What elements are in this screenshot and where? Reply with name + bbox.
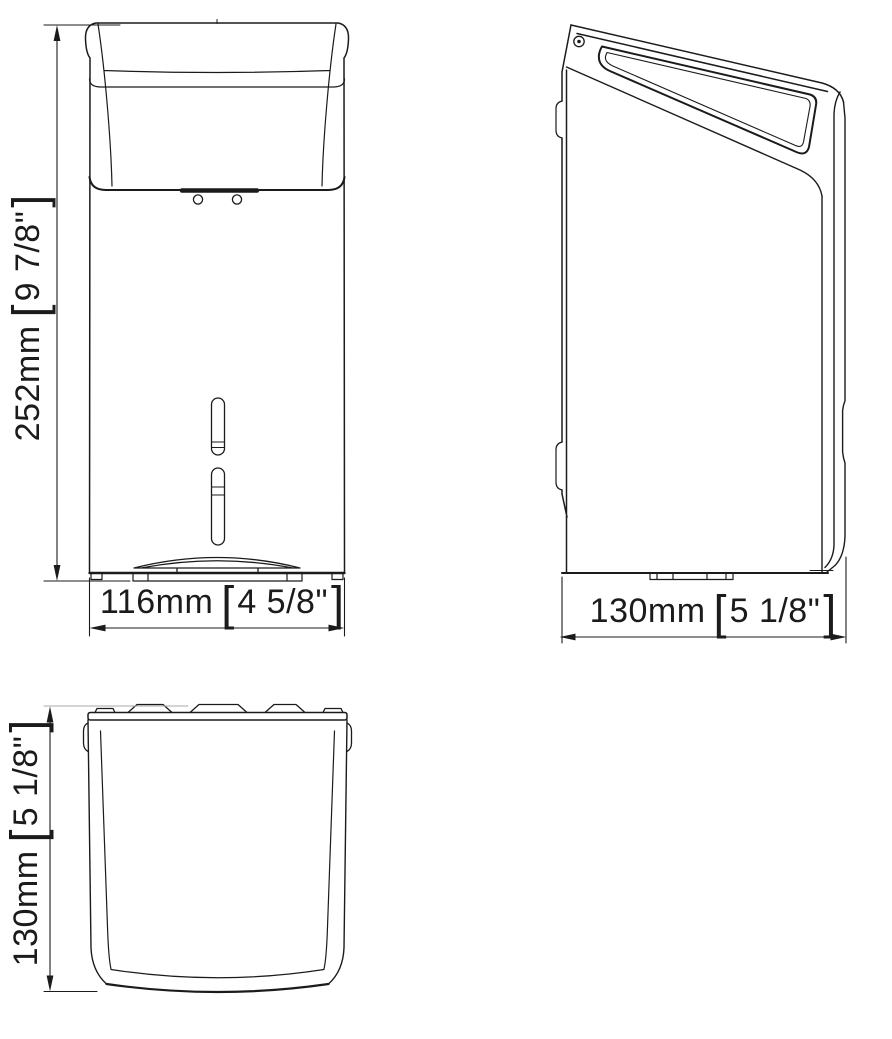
front-height-arrow-down [54, 565, 61, 581]
bracket-open: [ [4, 304, 56, 317]
side-top-slant [571, 25, 844, 102]
front-view-drawing [85, 20, 348, 582]
front-hood-creases [90, 24, 345, 186]
side-front-edge [822, 92, 845, 573]
front-base-pedestal [134, 558, 300, 574]
dispenser-technical-drawing: 252mm[9 7/8"] 116mm[4 5/8"] 130mm[5 1/8"… [0, 0, 892, 1039]
front-sensor-hole-left [193, 195, 202, 204]
side-back-edge [562, 25, 571, 573]
front-height-imperial: 9 7/8" [9, 211, 47, 302]
front-height-label: 252mm[9 7/8"] [7, 195, 54, 442]
top-front-arc [107, 984, 329, 992]
bracket-close: ] [2, 720, 54, 733]
top-depth-label: 130mm[5 1/8"] [5, 720, 52, 967]
top-depth-arrow-down [47, 976, 54, 992]
side-depth-imperial: 5 1/8" [730, 592, 821, 630]
side-view-drawing [556, 25, 845, 580]
side-window-inner [605, 53, 810, 147]
bracket-close: ] [331, 578, 344, 630]
front-width-label: 116mm[4 5/8"] [100, 581, 344, 628]
side-mounting-tabs [556, 101, 562, 490]
bracket-close: ] [823, 587, 836, 639]
top-depth-dimension [44, 706, 188, 992]
side-hood-parting-line [567, 67, 823, 196]
top-side-ears [84, 723, 352, 752]
front-width-metric: 116mm [100, 583, 213, 621]
front-sight-window-lower [212, 468, 225, 545]
front-height-dim-lines [44, 25, 130, 581]
orthographic-views-svg [0, 0, 892, 1039]
top-inner-taper [101, 731, 335, 978]
front-height-dimension [44, 25, 130, 581]
front-height-metric: 252mm [9, 325, 47, 441]
bracket-open: [ [2, 829, 54, 842]
top-back-rail [88, 713, 347, 721]
side-depth-metric: 130mm [590, 592, 706, 630]
bracket-open: [ [221, 578, 234, 630]
top-view-drawing [84, 705, 352, 993]
bracket-close: ] [4, 195, 56, 208]
front-width-imperial: 4 5/8" [237, 583, 328, 621]
front-body-outline [85, 23, 348, 572]
front-hood-bottom-edge [90, 177, 345, 190]
side-depth-label: 130mm[5 1/8"] [590, 590, 837, 637]
side-window-outer [599, 47, 816, 154]
bracket-open: [ [714, 587, 727, 639]
front-sight-window-upper [212, 398, 225, 455]
side-screw-center [577, 40, 581, 44]
top-depth-metric: 130mm [7, 850, 45, 966]
top-outer-sides [88, 720, 347, 984]
top-depth-imperial: 5 1/8" [7, 736, 45, 827]
front-sensor-hole-right [232, 195, 241, 204]
front-height-arrow-up [54, 25, 61, 41]
